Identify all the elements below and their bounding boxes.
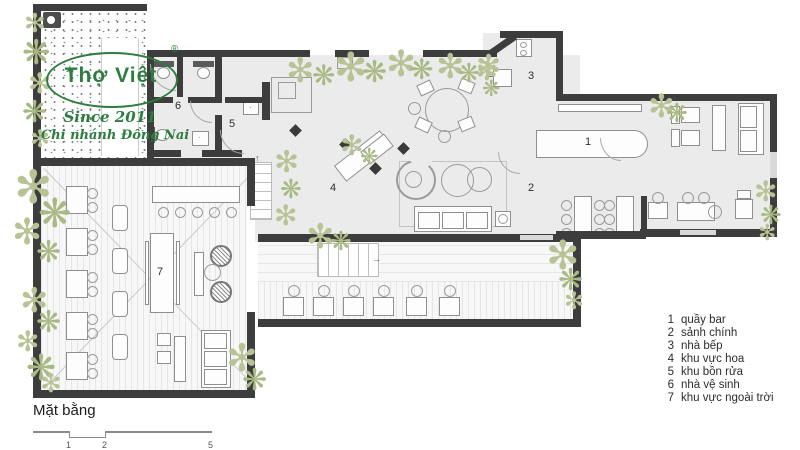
legend-label: sảnh chính [681, 327, 737, 340]
small-table [112, 205, 128, 231]
legend-label: khu vực ngoài trời [681, 392, 774, 405]
stool-icon [209, 207, 220, 218]
stool-icon [288, 285, 300, 297]
chair-icon [87, 188, 98, 199]
stair-direction-arrow: → [372, 254, 381, 264]
legend-num: 6 [664, 379, 674, 392]
plant-icon: ❋ [312, 62, 335, 90]
stool-icon [444, 285, 456, 297]
wall-restroom-top [147, 50, 269, 57]
bench-rail [145, 241, 149, 305]
floor-plan-canvas: ↑ → · · [0, 0, 800, 450]
logo-since-text: Since 2011 [40, 108, 180, 126]
wall-kitchen-top [500, 31, 563, 38]
chair-icon [87, 368, 98, 379]
room-label-kitchen: 3 [528, 70, 534, 82]
legend-label: nhà bếp [681, 340, 723, 353]
legend-num: 1 [664, 314, 674, 327]
scale-bar-segment [33, 431, 69, 433]
side-stool [408, 102, 421, 115]
chair-icon [87, 354, 98, 365]
stool-icon [175, 207, 186, 218]
sofa-seat [740, 106, 757, 128]
room-label-bar: 1 [585, 136, 591, 148]
legend-num: 2 [664, 327, 674, 340]
wall-corridor-bottom [258, 319, 581, 327]
side-rail-table [194, 252, 204, 296]
wall-room5-right [262, 82, 270, 120]
chair-icon [87, 328, 98, 339]
wall-toilet-partition [177, 57, 183, 97]
legend-num: 7 [664, 392, 674, 405]
chair-icon [87, 244, 98, 255]
scale-bar-segment [105, 431, 212, 433]
plant-icon: ❋ [410, 56, 433, 84]
room-label-wash: 5 [229, 118, 235, 130]
stove-burner [520, 42, 527, 48]
stool-table [406, 297, 427, 316]
plant-icon: ❋ [482, 78, 500, 100]
window-gap [770, 152, 777, 178]
legend-label: quầy bar [681, 314, 726, 327]
room-label-hall: 2 [528, 182, 534, 194]
stool-icon [158, 207, 169, 218]
chair-icon [87, 230, 98, 241]
stool-icon [411, 285, 423, 297]
toilet-icon [197, 67, 210, 79]
legend-num: 4 [664, 353, 674, 366]
stool-table [439, 297, 460, 316]
sofa-seat [204, 369, 227, 385]
armchair-back [671, 129, 680, 147]
side-table [157, 351, 171, 364]
stool-icon [348, 285, 360, 297]
back-shelf [558, 104, 642, 112]
chair-icon [87, 286, 98, 297]
wall-kitchen-right [556, 31, 563, 101]
chair-icon [87, 314, 98, 325]
registered-trademark: ® [171, 44, 178, 55]
stool-icon [192, 207, 203, 218]
scale-tick-label: 1 [66, 440, 71, 450]
plant-icon: ❋ [666, 100, 688, 126]
side-stool [438, 130, 451, 143]
stool-table [283, 297, 304, 316]
legend-item: 7khu vực ngoài trời [664, 392, 774, 405]
square-table [648, 202, 668, 219]
outdoor-table [66, 352, 88, 380]
plant-icon: ✻ [564, 290, 584, 314]
bench-table [712, 105, 726, 151]
chair-icon [561, 214, 572, 225]
basin-drain-dot: · [249, 103, 252, 112]
sofa-seat [740, 130, 757, 152]
plant-icon: ❋ [36, 238, 61, 268]
legend: 1quầy bar 2sảnh chính 3nhà bếp 4khu vực … [664, 314, 774, 405]
threshold-gap [680, 230, 716, 235]
legend-item: 5khu bồn rửa [664, 366, 774, 379]
chair-icon [698, 192, 710, 204]
stove-burner [520, 50, 527, 56]
scale-tick-label: 5 [208, 440, 213, 450]
wall-room6-room5 [215, 57, 222, 102]
side-table [157, 333, 171, 346]
chair-icon [682, 192, 694, 204]
sofa-seat [204, 351, 227, 367]
chair-icon [604, 200, 615, 211]
plant-icon: ❋ [280, 176, 302, 202]
legend-item: 3nhà bếp [664, 340, 774, 353]
small-table [112, 334, 128, 360]
legend-label: khu bồn rửa [681, 366, 743, 379]
legend-num: 5 [664, 366, 674, 379]
chair-icon [652, 192, 664, 204]
small-table [112, 291, 128, 317]
legend-item: 4khu vực hoa [664, 353, 774, 366]
legend-item: 6nhà vệ sinh [664, 379, 774, 392]
wall-top-gravel [33, 4, 147, 11]
plant-icon: ❋ [360, 146, 378, 168]
stool-table [373, 297, 394, 316]
table-lamp [498, 214, 508, 224]
chair-icon [737, 190, 751, 199]
small-table [112, 248, 128, 274]
legend-num: 3 [664, 340, 674, 353]
bench-rail [176, 241, 180, 305]
wicker-chair [210, 281, 232, 303]
sofa-seat [442, 212, 464, 229]
outdoor-table [66, 312, 88, 340]
round-table [204, 264, 221, 281]
stool-table [343, 297, 364, 316]
wall-hall-divider [641, 196, 647, 236]
wall-restroom-bottom-a [147, 150, 181, 157]
chair-icon [87, 202, 98, 213]
plant-icon: ❋ [330, 228, 352, 254]
outdoor-counter [152, 186, 240, 203]
legend-label: khu vực hoa [681, 353, 744, 366]
plan-title: Mặt bằng [33, 402, 96, 419]
room-label-flower: 4 [330, 182, 336, 194]
sofa-seat [204, 333, 227, 349]
round-table [467, 167, 492, 192]
plant-icon: ❋ [38, 194, 72, 234]
legend-item: 1quầy bar [664, 314, 774, 327]
chair-icon [604, 214, 615, 225]
wall-room5-top [225, 97, 267, 103]
logo-branch-text: Chi nhánh Đồng Nai [30, 128, 200, 143]
plant-icon: ✻ [40, 370, 62, 396]
side-rail-table [174, 336, 186, 382]
chair-icon [87, 272, 98, 283]
stool-table [313, 297, 334, 316]
sofa-seat [418, 212, 440, 229]
stair-direction-arrow: ↑ [255, 153, 260, 163]
outdoor-table [66, 270, 88, 298]
plant-icon: ❋ [22, 36, 51, 70]
sofa-seat [466, 212, 488, 229]
square-table [735, 199, 753, 219]
wall-outdoor-bottom [33, 390, 255, 398]
room-label-outdoor: 7 [157, 266, 163, 278]
bar-counter [536, 130, 648, 158]
plant-icon: ✻ [24, 10, 46, 36]
plant-icon: ✻ [274, 202, 297, 230]
plant-icon: ✻ [286, 54, 315, 88]
basin-bowl [47, 16, 55, 24]
stool-icon [378, 285, 390, 297]
logo-brand-text: Thợ Việt [50, 64, 172, 88]
plant-icon: ✻ [758, 222, 776, 244]
chair-icon [561, 200, 572, 211]
legend-label: nhà vệ sinh [681, 379, 740, 392]
armchair-seat [681, 130, 700, 146]
stool-icon [226, 207, 237, 218]
stool-icon [318, 285, 330, 297]
plant-icon: ❋ [36, 308, 61, 338]
legend-item: 2sảnh chính [664, 327, 774, 340]
armchair-seat [405, 171, 422, 188]
plant-icon: ❋ [242, 366, 267, 396]
plant-icon: ❋ [362, 58, 387, 88]
scale-bar-segment [69, 437, 105, 438]
scale-tick-label: 2 [102, 440, 107, 450]
round-chair [708, 205, 722, 219]
wall-outdoor-top [33, 158, 255, 166]
